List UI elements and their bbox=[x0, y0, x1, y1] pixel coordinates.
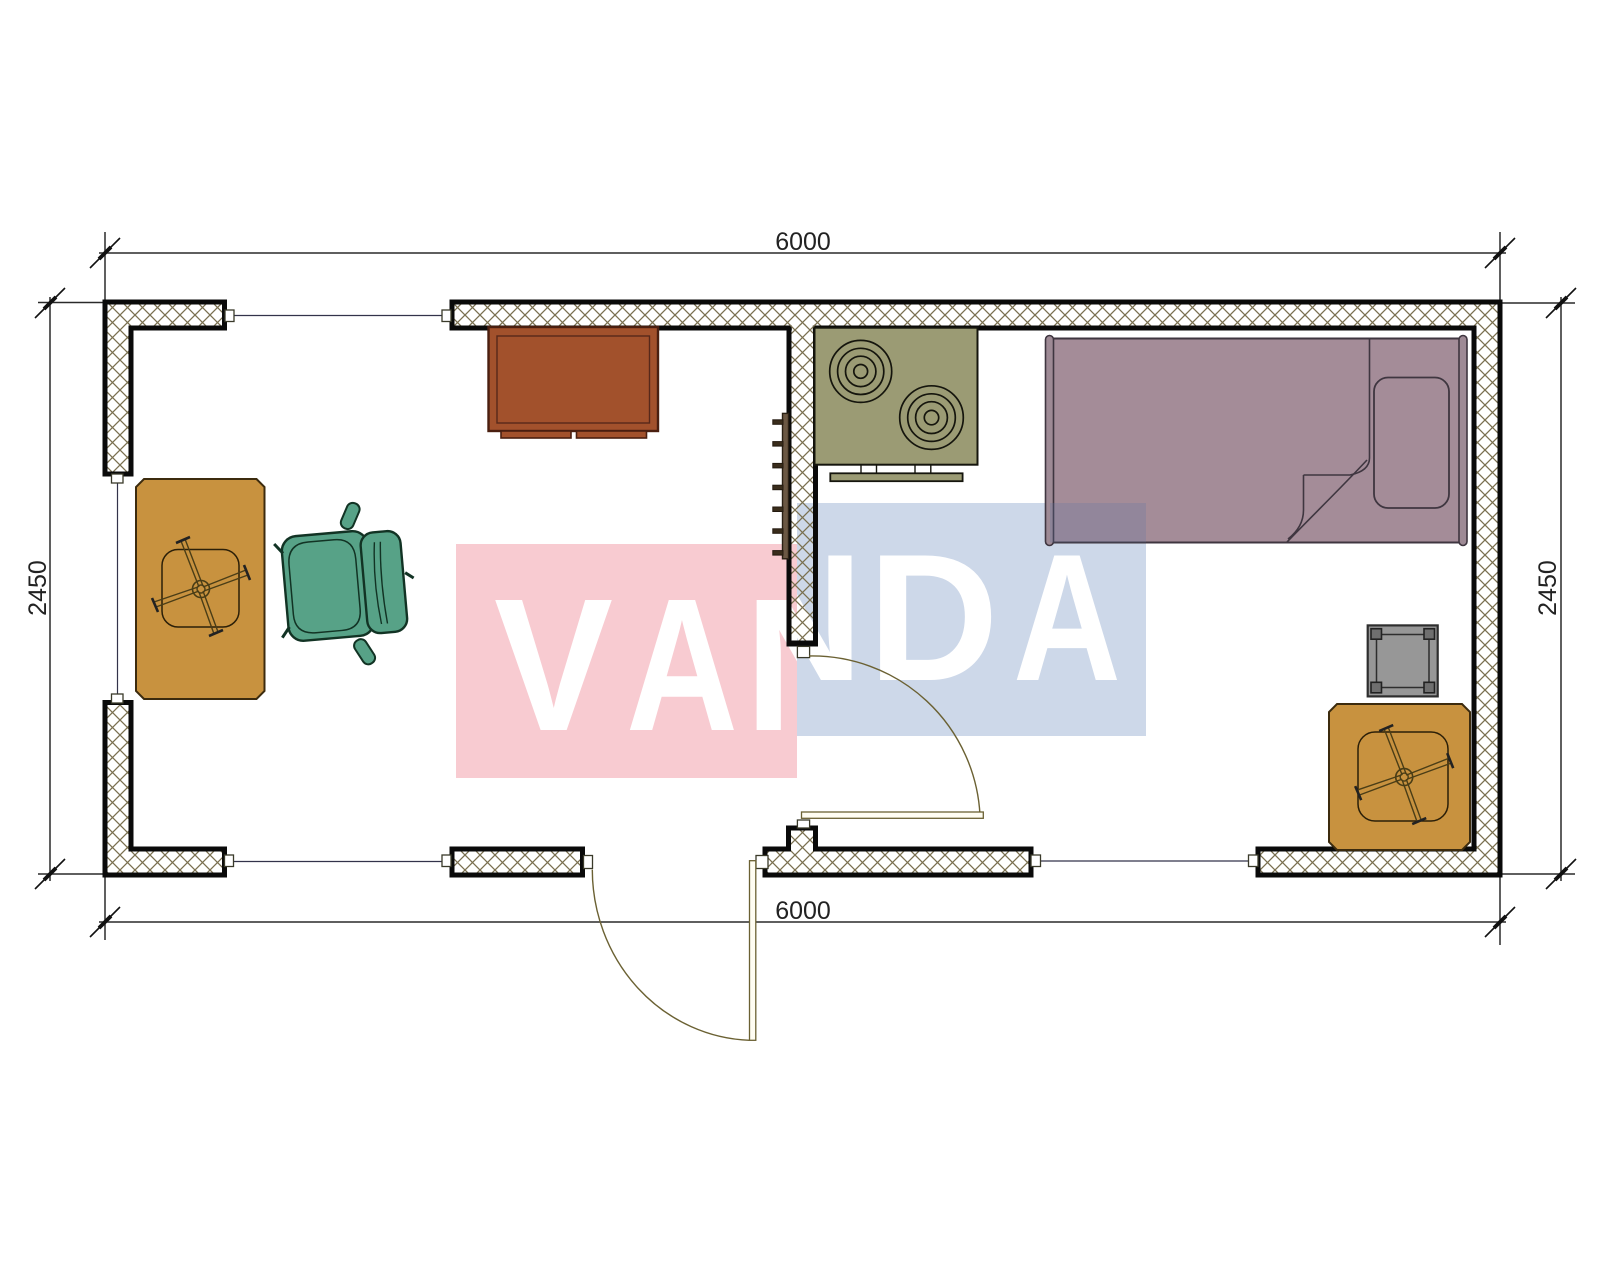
svg-text:6000: 6000 bbox=[775, 897, 831, 925]
svg-text:6000: 6000 bbox=[775, 228, 831, 256]
svg-text:2450: 2450 bbox=[24, 560, 52, 616]
svg-text:2450: 2450 bbox=[1534, 560, 1562, 616]
